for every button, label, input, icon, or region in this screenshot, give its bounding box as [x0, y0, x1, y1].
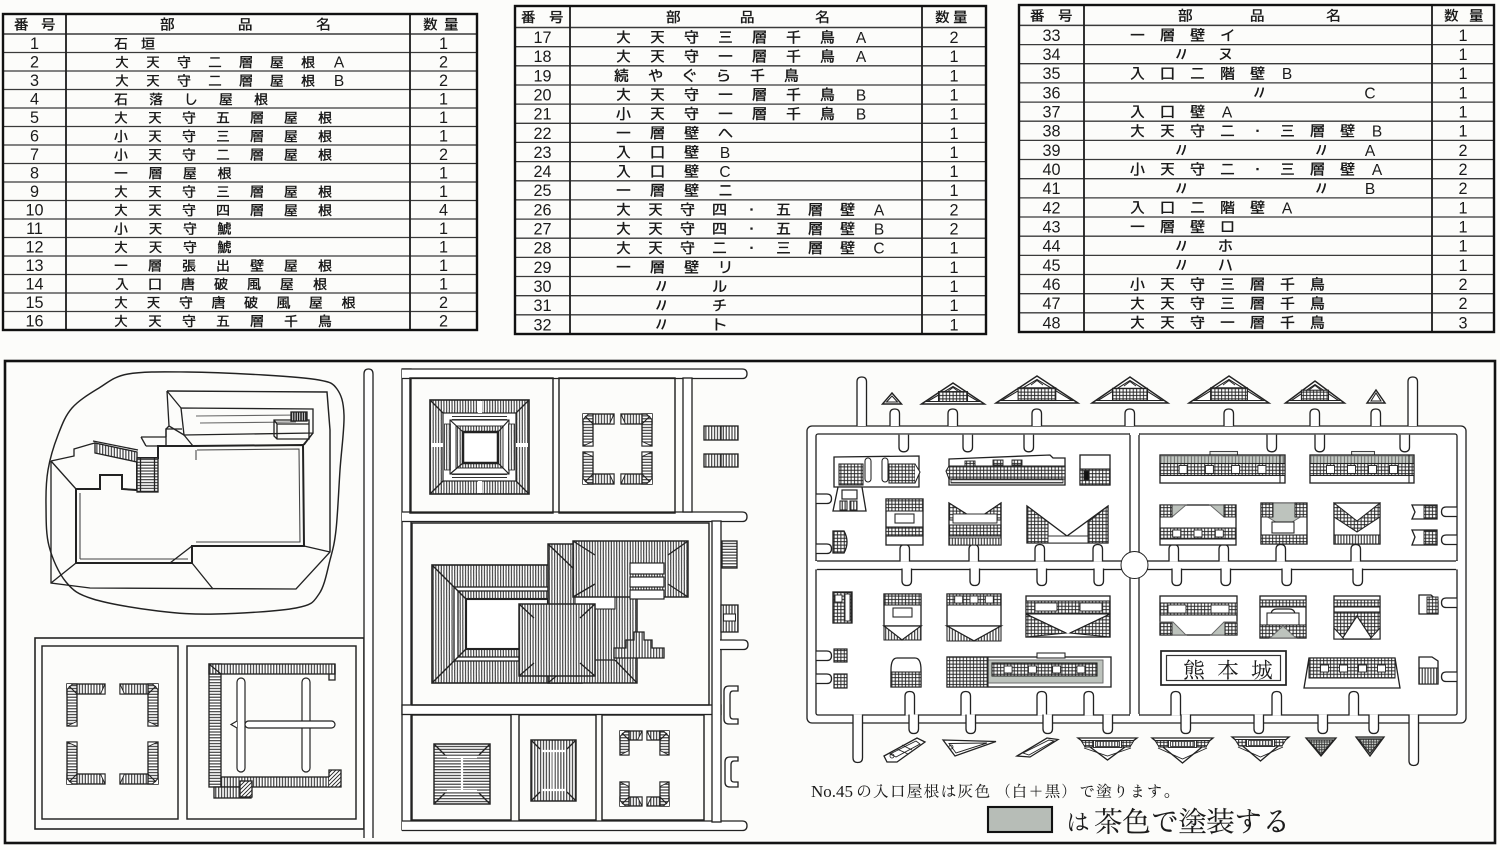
svg-text:46: 46 — [1042, 276, 1060, 294]
svg-text:38: 38 — [1042, 123, 1060, 141]
svg-text:1: 1 — [949, 144, 958, 162]
svg-text:A: A — [1372, 162, 1383, 179]
svg-text:1: 1 — [1458, 238, 1467, 256]
svg-text:1: 1 — [949, 182, 958, 200]
svg-text:26: 26 — [533, 201, 551, 219]
svg-text:C: C — [1364, 85, 1375, 102]
svg-text:25: 25 — [533, 182, 551, 200]
svg-text:1: 1 — [949, 163, 958, 181]
svg-text:1: 1 — [1458, 65, 1467, 83]
svg-text:14: 14 — [25, 276, 43, 294]
svg-text:1: 1 — [949, 86, 958, 104]
svg-text:33: 33 — [1042, 27, 1060, 45]
svg-text:A: A — [1282, 200, 1293, 217]
svg-text:2: 2 — [949, 29, 958, 47]
svg-text:1: 1 — [949, 125, 958, 143]
svg-text:13: 13 — [25, 257, 43, 275]
svg-text:2: 2 — [30, 54, 39, 72]
svg-text:C: C — [873, 241, 884, 258]
svg-text:3: 3 — [30, 72, 39, 90]
svg-text:3: 3 — [1458, 314, 1467, 332]
svg-text:1: 1 — [439, 183, 448, 201]
svg-text:2: 2 — [439, 294, 448, 312]
svg-text:31: 31 — [533, 297, 551, 315]
svg-text:4: 4 — [439, 202, 448, 220]
svg-text:44: 44 — [1042, 238, 1060, 256]
svg-text:43: 43 — [1042, 219, 1060, 237]
svg-text:1: 1 — [949, 106, 958, 124]
svg-text:1: 1 — [439, 257, 448, 275]
svg-text:B: B — [856, 87, 866, 104]
svg-text:1: 1 — [1458, 104, 1467, 122]
svg-text:35: 35 — [1042, 65, 1060, 83]
svg-text:17: 17 — [533, 29, 551, 47]
svg-text:A: A — [1365, 143, 1376, 160]
svg-text:1: 1 — [30, 35, 39, 53]
svg-text:2: 2 — [439, 313, 448, 331]
svg-text:4: 4 — [30, 91, 39, 109]
svg-text:B: B — [1372, 124, 1382, 141]
svg-text:5: 5 — [30, 109, 39, 127]
svg-text:7: 7 — [30, 146, 39, 164]
svg-text:1: 1 — [1458, 219, 1467, 237]
svg-text:32: 32 — [533, 316, 551, 334]
svg-text:B: B — [1365, 181, 1375, 198]
svg-text:1: 1 — [949, 316, 958, 334]
svg-text:1: 1 — [949, 48, 958, 66]
svg-text:1: 1 — [1458, 84, 1467, 102]
svg-text:23: 23 — [533, 144, 551, 162]
svg-text:2: 2 — [1458, 295, 1467, 313]
svg-text:A: A — [874, 202, 885, 219]
svg-text:21: 21 — [533, 106, 551, 124]
svg-text:30: 30 — [533, 278, 551, 296]
svg-text:28: 28 — [533, 240, 551, 258]
svg-text:1: 1 — [949, 67, 958, 85]
svg-text:B: B — [874, 222, 884, 239]
svg-text:2: 2 — [949, 221, 958, 239]
svg-text:1: 1 — [949, 297, 958, 315]
svg-text:6: 6 — [30, 128, 39, 146]
svg-text:39: 39 — [1042, 142, 1060, 160]
svg-text:1: 1 — [1458, 257, 1467, 275]
svg-text:1: 1 — [949, 278, 958, 296]
svg-text:A: A — [856, 30, 867, 47]
svg-text:2: 2 — [1458, 180, 1467, 198]
svg-text:45: 45 — [1042, 257, 1060, 275]
svg-text:1: 1 — [439, 109, 448, 127]
svg-text:1: 1 — [949, 259, 958, 277]
svg-text:1: 1 — [1458, 46, 1467, 64]
svg-text:36: 36 — [1042, 84, 1060, 102]
svg-text:42: 42 — [1042, 199, 1060, 217]
svg-text:A: A — [334, 55, 345, 72]
svg-text:47: 47 — [1042, 295, 1060, 313]
svg-text:12: 12 — [25, 239, 43, 257]
svg-text:1: 1 — [439, 220, 448, 238]
svg-text:1: 1 — [439, 91, 448, 109]
svg-text:8: 8 — [30, 165, 39, 183]
svg-text:1: 1 — [1458, 123, 1467, 141]
svg-text:34: 34 — [1042, 46, 1060, 64]
svg-text:9: 9 — [30, 183, 39, 201]
svg-text:24: 24 — [533, 163, 551, 181]
svg-text:29: 29 — [533, 259, 551, 277]
svg-text:B: B — [720, 145, 730, 162]
svg-text:C: C — [719, 164, 730, 181]
svg-text:1: 1 — [1458, 199, 1467, 217]
svg-text:2: 2 — [439, 54, 448, 72]
svg-text:B: B — [1282, 66, 1292, 83]
svg-text:15: 15 — [25, 294, 43, 312]
svg-text:20: 20 — [533, 86, 551, 104]
svg-text:B: B — [856, 107, 866, 124]
svg-text:B: B — [334, 73, 344, 90]
svg-text:A: A — [1222, 105, 1233, 122]
svg-text:2: 2 — [1458, 276, 1467, 294]
svg-text:1: 1 — [439, 128, 448, 146]
svg-text:27: 27 — [533, 221, 551, 239]
svg-text:1: 1 — [439, 165, 448, 183]
svg-text:11: 11 — [26, 220, 43, 238]
svg-text:2: 2 — [1458, 161, 1467, 179]
svg-text:22: 22 — [533, 125, 551, 143]
svg-text:1: 1 — [439, 35, 448, 53]
svg-text:40: 40 — [1042, 161, 1060, 179]
svg-text:1: 1 — [439, 239, 448, 257]
svg-text:No.45: No.45 — [811, 782, 853, 801]
svg-text:2: 2 — [439, 72, 448, 90]
svg-text:16: 16 — [25, 313, 43, 331]
svg-text:1: 1 — [439, 276, 448, 294]
svg-text:1: 1 — [1458, 27, 1467, 45]
svg-text:18: 18 — [533, 48, 551, 66]
svg-text:10: 10 — [25, 202, 43, 220]
svg-text:37: 37 — [1042, 104, 1060, 122]
svg-text:19: 19 — [533, 67, 551, 85]
svg-text:2: 2 — [1458, 142, 1467, 160]
svg-text:2: 2 — [439, 146, 448, 164]
svg-text:2: 2 — [949, 201, 958, 219]
svg-text:41: 41 — [1042, 180, 1060, 198]
svg-text:1: 1 — [949, 240, 958, 258]
svg-text:A: A — [856, 49, 867, 66]
svg-text:48: 48 — [1042, 314, 1060, 332]
